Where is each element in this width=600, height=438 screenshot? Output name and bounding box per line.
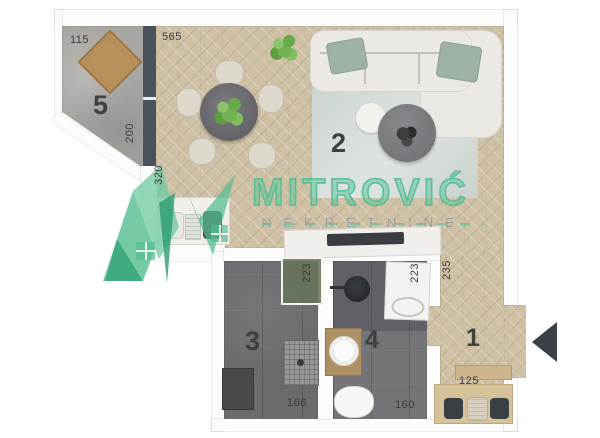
entrance-arrow-icon (532, 322, 557, 362)
room-number-3: 3 (245, 326, 260, 357)
potted-plant (268, 32, 300, 64)
toilet (334, 386, 374, 418)
basin (329, 336, 359, 366)
dim-wc-bottom: 160 (395, 399, 415, 411)
bathroom-cabinet (222, 368, 254, 410)
dining-chair (188, 138, 216, 165)
coffee-table (378, 104, 436, 162)
sofa-seam (418, 54, 420, 84)
floorplan-image: MITROVIĆ NEKRETNINE 115 565 200 320 223 … (0, 0, 600, 438)
terrace-glass-partition (143, 26, 156, 170)
dim-living-top: 565 (162, 31, 182, 43)
brand-subtitle-row: NEKRETNINE (262, 214, 484, 230)
shower-drain (297, 359, 304, 366)
brand-logo-mountain (103, 163, 265, 295)
bench-basket (467, 397, 488, 421)
brand-name: MITROVIĆ (252, 174, 470, 212)
shoe-bench (434, 384, 513, 424)
room-number-2: 2 (331, 128, 346, 159)
dim-living-side: 320 (153, 165, 165, 185)
round-sink (344, 276, 370, 302)
room-number-1: 1 (466, 324, 480, 353)
dim-bath-bottom: 166 (287, 397, 307, 409)
sofa-pillow (435, 41, 482, 83)
brand-logo-window (136, 242, 155, 260)
washing-machine (384, 261, 431, 321)
brand-logo-window (211, 225, 228, 242)
sofa-pillow (326, 37, 369, 75)
dining-chair (176, 88, 202, 117)
tv (327, 232, 404, 246)
coffee-table-decor (394, 124, 420, 148)
dim-terrace-top: 115 (70, 34, 89, 46)
bench-cushion (490, 398, 509, 419)
room-number-5: 5 (93, 90, 108, 121)
shower-tray (283, 340, 319, 386)
partition-divider (143, 97, 156, 100)
dim-hall-bottom: 125 (459, 375, 479, 387)
room-number-4: 4 (365, 326, 379, 355)
dim-laundry-side: 223 (409, 263, 421, 283)
brand-subtitle: NEKRETNINE (262, 216, 466, 229)
dining-table-plant (212, 95, 246, 129)
dim-hall-side: 235 (441, 260, 453, 280)
dim-terrace-side: 200 (124, 123, 136, 143)
washer-door (391, 296, 425, 317)
dim-bath-glass-side: 223 (301, 263, 313, 283)
bench-cushion (444, 398, 463, 419)
wall-right-upper (504, 10, 517, 305)
wall-terrace-left (55, 10, 62, 118)
dining-chair (258, 84, 284, 113)
wall-top (55, 10, 517, 26)
